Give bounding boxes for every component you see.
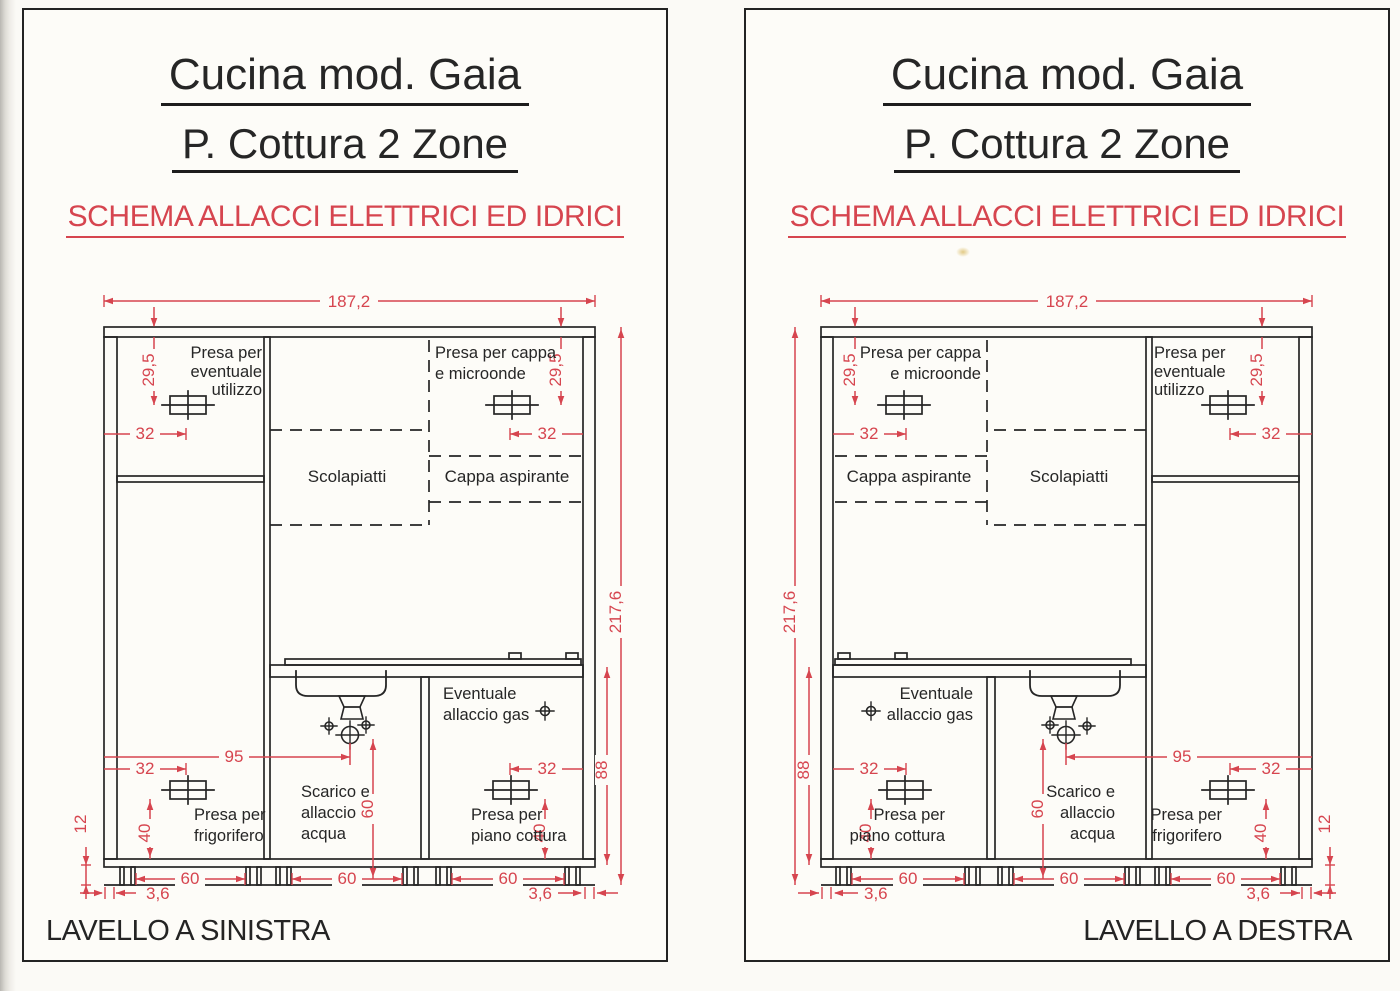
- dim-leg-inset-label: 3,6: [528, 884, 552, 903]
- page-subtitle: P. Cottura 2 Zone: [894, 122, 1240, 174]
- dim-socket-offset-label: 32: [860, 759, 879, 778]
- label-presa-frigorifero: frigorifero: [1152, 827, 1222, 845]
- dim-socket-offset-label: 32: [1262, 759, 1281, 778]
- dim-socket-offset-label: 32: [136, 759, 155, 778]
- label-presa-piano-cottura: Presa per: [873, 806, 945, 824]
- dim-socket-offset-label: 32: [860, 424, 879, 443]
- panel-lavello-destra: Cucina mod. Gaia P. Cottura 2 Zone SCHEM…: [744, 8, 1390, 962]
- dim-base-unit-width-label: 60: [1060, 869, 1079, 888]
- panel-header: Cucina mod. Gaia P. Cottura 2 Zone SCHEM…: [24, 52, 666, 238]
- label-presa-cappa: e microonde: [435, 365, 526, 383]
- kitchen-schematic-sink-left: 187,229,529,5323295603232404088217,61260…: [24, 282, 670, 930]
- page-subtitle: P. Cottura 2 Zone: [172, 122, 518, 174]
- plumbing-and-socket-symbols: [162, 391, 554, 804]
- dim-plinth-height-label: 12: [71, 815, 90, 834]
- label-presa-eventuale: eventuale: [1154, 363, 1226, 381]
- scan-edge-shadow: [0, 0, 16, 991]
- label-presa-eventuale: utilizzo: [212, 381, 262, 399]
- label-scarico-acqua: acqua: [301, 825, 347, 843]
- kitchen-schematic-sink-right: 187,229,529,5323295603232404088217,61260…: [746, 282, 1392, 930]
- dim-leg-inset-label: 3,6: [864, 884, 888, 903]
- label-presa-eventuale: utilizzo: [1154, 381, 1204, 399]
- panel-lavello-sinistra: Cucina mod. Gaia P. Cottura 2 Zone SCHEM…: [22, 8, 668, 962]
- dim-top-socket-drop-label: 29,5: [139, 353, 158, 386]
- panel-header: Cucina mod. Gaia P. Cottura 2 Zone SCHEM…: [746, 52, 1388, 238]
- dim-socket-height-label: 40: [1251, 824, 1270, 843]
- label-presa-cappa: Presa per cappa: [435, 344, 557, 362]
- label-presa-piano-cottura: Presa per: [471, 806, 543, 824]
- dim-drain-height-label: 60: [358, 800, 377, 819]
- dim-base-height-label: 88: [794, 761, 813, 780]
- dim-base-unit-width-label: 60: [1217, 869, 1236, 888]
- dim-drain-offset-label: 95: [225, 747, 244, 766]
- scan-artifact-speck: [956, 247, 970, 257]
- label-scarico-acqua: acqua: [1070, 825, 1116, 843]
- label-eventuale-gas: allaccio gas: [443, 706, 529, 724]
- label-cappa-aspirante: Cappa aspirante: [445, 467, 570, 486]
- dim-total-width-label: 187,2: [328, 292, 371, 311]
- label-eventuale-gas: allaccio gas: [887, 706, 973, 724]
- dim-drain-height-label: 60: [1028, 800, 1047, 819]
- dim-plinth-height-label: 12: [1315, 815, 1334, 834]
- label-presa-eventuale: eventuale: [190, 363, 262, 381]
- label-presa-eventuale: Presa per: [1154, 344, 1226, 362]
- dim-base-height-label: 88: [592, 761, 611, 780]
- scanned-kitchen-schematic-page: { "colors": { "ink": "#262626", "dim_red…: [0, 0, 1400, 991]
- label-scolapiatti: Scolapiatti: [1030, 467, 1108, 486]
- cabinet-structure: [821, 327, 1312, 885]
- footer-orientation-label: LAVELLO A DESTRA: [1083, 915, 1352, 948]
- dim-socket-offset-label: 32: [538, 424, 557, 443]
- label-scarico-acqua: allaccio: [1060, 804, 1115, 822]
- dim-top-socket-drop-label: 29,5: [840, 353, 859, 386]
- dim-total-width-label: 187,2: [1046, 292, 1089, 311]
- dim-socket-height-label: 40: [135, 824, 154, 843]
- schema-heading: SCHEMA ALLACCI ELETTRICI ED IDRICI: [788, 201, 1347, 238]
- dim-drain-offset-label: 95: [1173, 747, 1192, 766]
- label-presa-eventuale: Presa per: [190, 344, 262, 362]
- plumbing-and-socket-symbols: [862, 391, 1254, 804]
- label-presa-cappa: Presa per cappa: [860, 344, 982, 362]
- label-presa-frigorifero: Presa per: [194, 806, 266, 824]
- label-presa-piano-cottura: piano cottura: [850, 827, 946, 845]
- label-scolapiatti: Scolapiatti: [308, 467, 386, 486]
- dim-socket-offset-label: 32: [136, 424, 155, 443]
- dim-leg-inset-label: 3,6: [146, 884, 170, 903]
- schema-heading: SCHEMA ALLACCI ELETTRICI ED IDRICI: [66, 201, 625, 238]
- label-scarico-acqua: Scarico e: [1046, 783, 1115, 801]
- page-title: Cucina mod. Gaia: [161, 52, 529, 106]
- dim-top-socket-drop-label: 29,5: [1247, 353, 1266, 386]
- label-cappa-aspirante: Cappa aspirante: [847, 467, 972, 486]
- footer-orientation-label: LAVELLO A SINISTRA: [46, 915, 330, 948]
- label-presa-cappa: e microonde: [890, 365, 981, 383]
- label-scarico-acqua: allaccio: [301, 804, 356, 822]
- dim-base-unit-width-label: 60: [899, 869, 918, 888]
- page-title: Cucina mod. Gaia: [883, 52, 1251, 106]
- label-eventuale-gas: Eventuale: [443, 685, 516, 703]
- dimension-annotations: 187,229,529,5323295603232404088217,61260…: [780, 292, 1336, 903]
- label-presa-piano-cottura: piano cottura: [471, 827, 567, 845]
- label-presa-frigorifero: frigorifero: [194, 827, 264, 845]
- dim-socket-offset-label: 32: [538, 759, 557, 778]
- dim-socket-offset-label: 32: [1262, 424, 1281, 443]
- dim-base-unit-width-label: 60: [338, 869, 357, 888]
- label-eventuale-gas: Eventuale: [900, 685, 973, 703]
- dim-total-height-label: 217,6: [780, 591, 799, 634]
- dim-leg-inset-label: 3,6: [1246, 884, 1270, 903]
- label-scarico-acqua: Scarico e: [301, 783, 370, 801]
- dim-base-unit-width-label: 60: [499, 869, 518, 888]
- cabinet-structure: [104, 327, 595, 885]
- dim-total-height-label: 217,6: [606, 591, 625, 634]
- label-presa-frigorifero: Presa per: [1150, 806, 1222, 824]
- dim-base-unit-width-label: 60: [181, 869, 200, 888]
